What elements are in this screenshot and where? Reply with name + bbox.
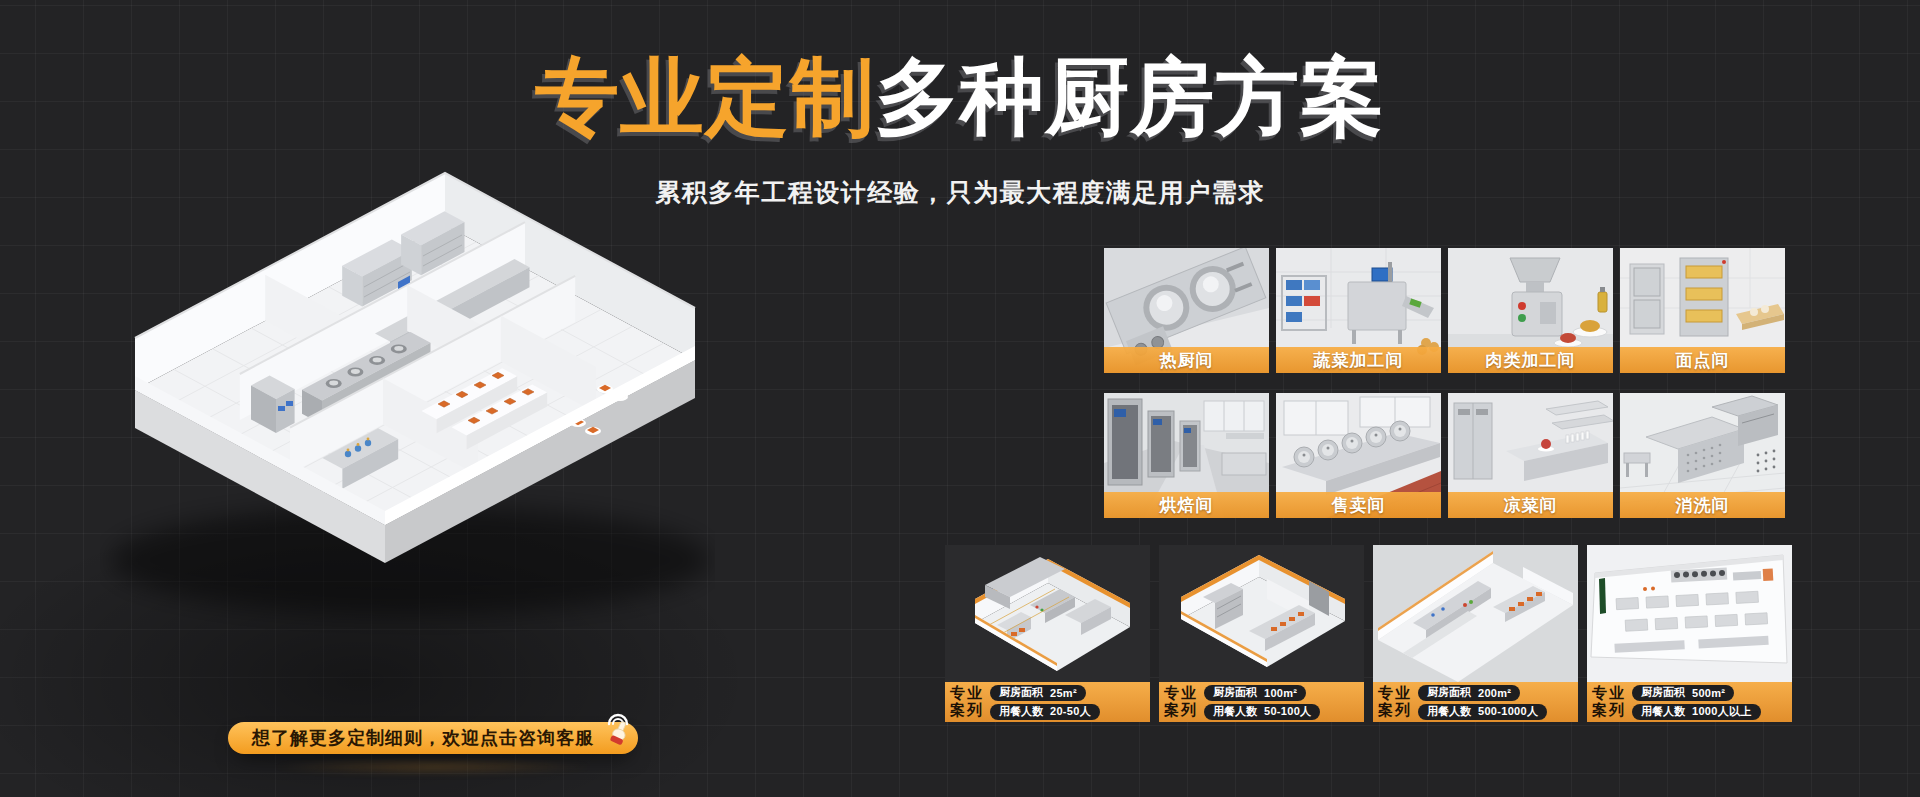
case-card-25m2: 专业案列 厨房面积25m² 用餐人数20-50人 bbox=[945, 545, 1150, 722]
room-tile-label: 蔬菜加工间 bbox=[1276, 347, 1441, 373]
case-badge: 专业案列 bbox=[1378, 685, 1412, 719]
kitchen-floorplan-illustration bbox=[100, 160, 715, 640]
room-tile-label: 凉菜间 bbox=[1448, 492, 1613, 518]
case-footer: 专业案列 厨房面积25m² 用餐人数20-50人 bbox=[945, 682, 1150, 722]
case-card-500m2: 专业案列 厨房面积500m² 用餐人数1000人以上 bbox=[1587, 545, 1792, 722]
case-footer: 专业案列 厨房面积200m² 用餐人数500-1000人 bbox=[1373, 682, 1578, 722]
room-tile-vegetable-processing: 蔬菜加工间 bbox=[1276, 248, 1441, 373]
tap-hand-icon bbox=[602, 713, 636, 747]
title-rest: 多种厨房方案 bbox=[875, 50, 1385, 144]
room-tile-label: 肉类加工间 bbox=[1448, 347, 1613, 373]
page-title: 专业定制多种厨房方案 bbox=[0, 50, 1920, 144]
room-tile-label: 热厨间 bbox=[1104, 347, 1269, 373]
diners-pill: 用餐人数50-100人 bbox=[1204, 704, 1320, 720]
case-badge: 专业案列 bbox=[1164, 685, 1198, 719]
case-gallery: 专业案列 厨房面积25m² 用餐人数20-50人 bbox=[945, 545, 1792, 722]
case-footer: 专业案列 厨房面积500m² 用餐人数1000人以上 bbox=[1587, 682, 1792, 722]
room-tile-cold-dish: 凉菜间 bbox=[1448, 393, 1613, 518]
hero-banner: 专业定制多种厨房方案 累积多年工程设计经验，只为最大程度满足用户需求 bbox=[0, 0, 1920, 797]
diners-pill: 用餐人数20-50人 bbox=[990, 704, 1100, 720]
diners-pill: 用餐人数1000人以上 bbox=[1632, 704, 1761, 720]
room-tile-label: 售卖间 bbox=[1276, 492, 1441, 518]
room-tile-label: 消洗间 bbox=[1620, 492, 1785, 518]
case-floorplan-100m2 bbox=[1159, 545, 1364, 682]
kitchen-area-pill: 厨房面积200m² bbox=[1418, 685, 1520, 701]
kitchen-floorplan-svg bbox=[100, 160, 715, 640]
case-floorplan-500m2 bbox=[1587, 545, 1792, 682]
case-card-100m2: 专业案列 厨房面积100m² 用餐人数50-100人 bbox=[1159, 545, 1364, 722]
room-gallery: 热厨间 蔬菜加工间 bbox=[1104, 248, 1785, 518]
room-tile-label: 面点间 bbox=[1620, 347, 1785, 373]
room-tile-baking: 烘焙间 bbox=[1104, 393, 1269, 518]
case-footer: 专业案列 厨房面积100m² 用餐人数50-100人 bbox=[1159, 682, 1364, 722]
kitchen-area-pill: 厨房面积100m² bbox=[1204, 685, 1306, 701]
room-tile-hot-kitchen: 热厨间 bbox=[1104, 248, 1269, 373]
case-floorplan-200m2 bbox=[1373, 545, 1578, 682]
room-tile-pastry: 面点间 bbox=[1620, 248, 1785, 373]
diners-pill: 用餐人数500-1000人 bbox=[1418, 704, 1547, 720]
title-highlight: 专业定制 bbox=[535, 50, 875, 144]
case-floorplan-25m2 bbox=[945, 545, 1150, 682]
case-badge: 专业案列 bbox=[1592, 685, 1626, 719]
consult-cta-label: 想了解更多定制细则，欢迎点击咨询客服 bbox=[252, 726, 594, 750]
room-tile-label: 烘焙间 bbox=[1104, 492, 1269, 518]
kitchen-area-pill: 厨房面积500m² bbox=[1632, 685, 1734, 701]
kitchen-area-pill: 厨房面积25m² bbox=[990, 685, 1086, 701]
case-badge: 专业案列 bbox=[950, 685, 984, 719]
room-tile-meat-processing: 肉类加工间 bbox=[1448, 248, 1613, 373]
room-tile-dishwashing: 消洗间 bbox=[1620, 393, 1785, 518]
room-tile-serving: 售卖间 bbox=[1276, 393, 1441, 518]
consult-cta-button[interactable]: 想了解更多定制细则，欢迎点击咨询客服 bbox=[228, 722, 638, 754]
case-card-200m2: 专业案列 厨房面积200m² 用餐人数500-1000人 bbox=[1373, 545, 1578, 722]
